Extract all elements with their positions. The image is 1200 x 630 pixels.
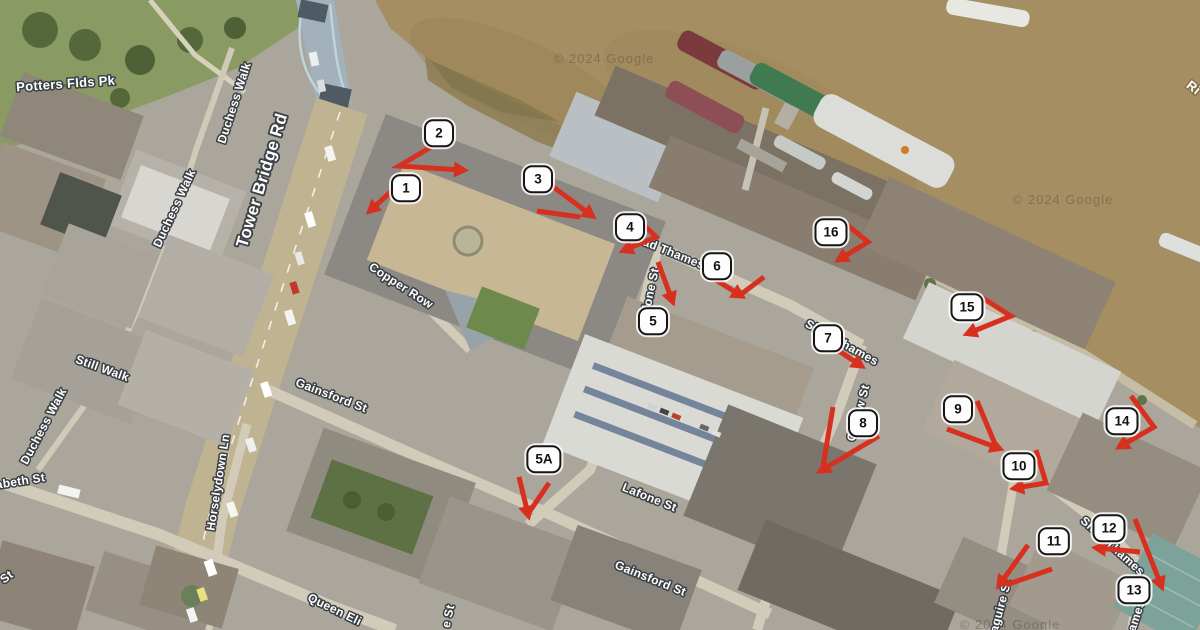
map-marker-11[interactable]: 11 [1038,527,1070,555]
map-marker-16[interactable]: 16 [814,218,847,246]
map-marker-5[interactable]: 5 [638,307,668,335]
map-marker-8[interactable]: 8 [848,409,878,437]
google-watermark: © 2024 Google [960,617,1061,630]
map-marker-6[interactable]: 6 [702,252,732,280]
map-marker-13[interactable]: 13 [1117,576,1150,604]
google-watermark: © 2024 Google [1013,192,1114,207]
map-marker-9[interactable]: 9 [943,395,973,423]
map-marker-12[interactable]: 12 [1092,514,1125,542]
map-marker-1[interactable]: 1 [391,174,421,202]
satellite-map: © 2024 Google© 2024 Google© 2024 Google … [0,0,1200,630]
map-marker-3[interactable]: 3 [523,165,553,193]
map-marker-14[interactable]: 14 [1105,407,1138,435]
map-marker-2[interactable]: 2 [424,119,454,147]
google-watermark: © 2024 Google [554,51,655,66]
map-marker-5A[interactable]: 5A [526,445,561,473]
satellite-imagery: © 2024 Google© 2024 Google© 2024 Google … [0,0,1200,630]
map-marker-10[interactable]: 10 [1002,452,1035,480]
map-marker-4[interactable]: 4 [615,213,645,241]
map-marker-7[interactable]: 7 [813,324,843,352]
map-marker-15[interactable]: 15 [950,293,983,321]
